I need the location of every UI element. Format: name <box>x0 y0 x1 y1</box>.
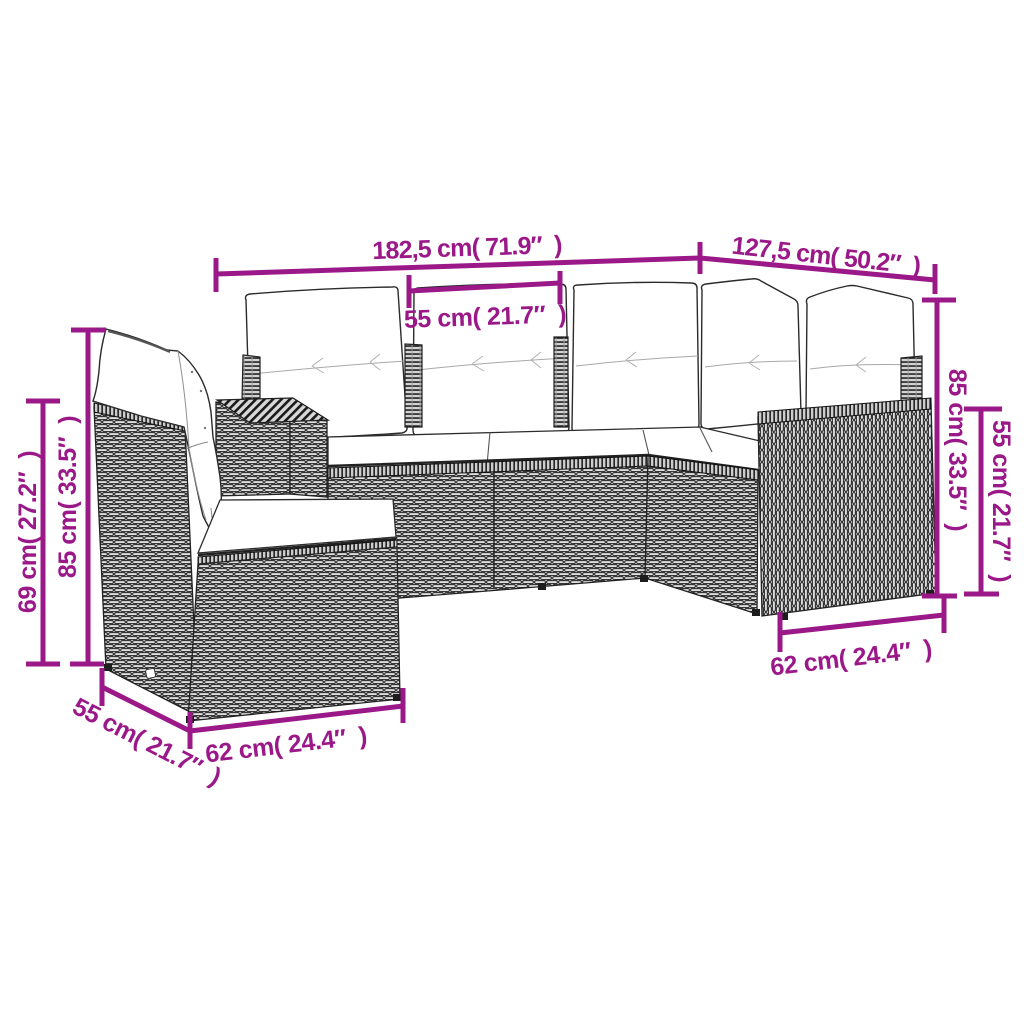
svg-text:55 cm( 21.7″ ): 55 cm( 21.7″ ) <box>987 420 1015 582</box>
svg-text:182,5 cm( 71.9″ ): 182,5 cm( 71.9″ ) <box>372 231 563 265</box>
svg-text:85 cm( 33.5″ ): 85 cm( 33.5″ ) <box>54 416 82 578</box>
svg-text:55 cm( 21.7″ ): 55 cm( 21.7″ ) <box>403 300 566 334</box>
svg-text:69 cm( 27.2″ ): 69 cm( 27.2″ ) <box>14 451 42 613</box>
svg-text:62 cm( 24.4″ ): 62 cm( 24.4″ ) <box>769 635 934 682</box>
svg-text:85 cm( 33.5″ ): 85 cm( 33.5″ ) <box>943 369 971 531</box>
svg-text:127,5 cm( 50.2″ ): 127,5 cm( 50.2″ ) <box>730 232 922 281</box>
